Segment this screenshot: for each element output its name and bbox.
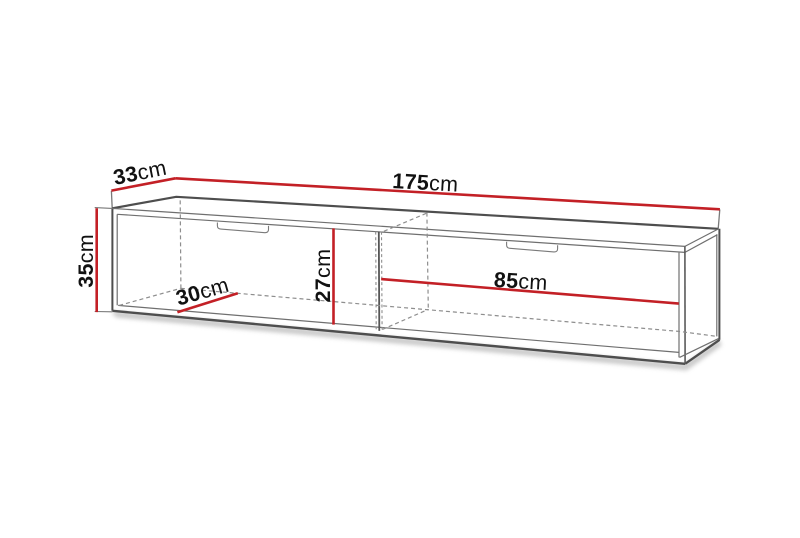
svg-text:35cm: 35cm bbox=[74, 234, 98, 288]
svg-text:175cm: 175cm bbox=[392, 169, 459, 197]
svg-text:27cm: 27cm bbox=[311, 249, 335, 303]
svg-text:85cm: 85cm bbox=[493, 268, 548, 295]
